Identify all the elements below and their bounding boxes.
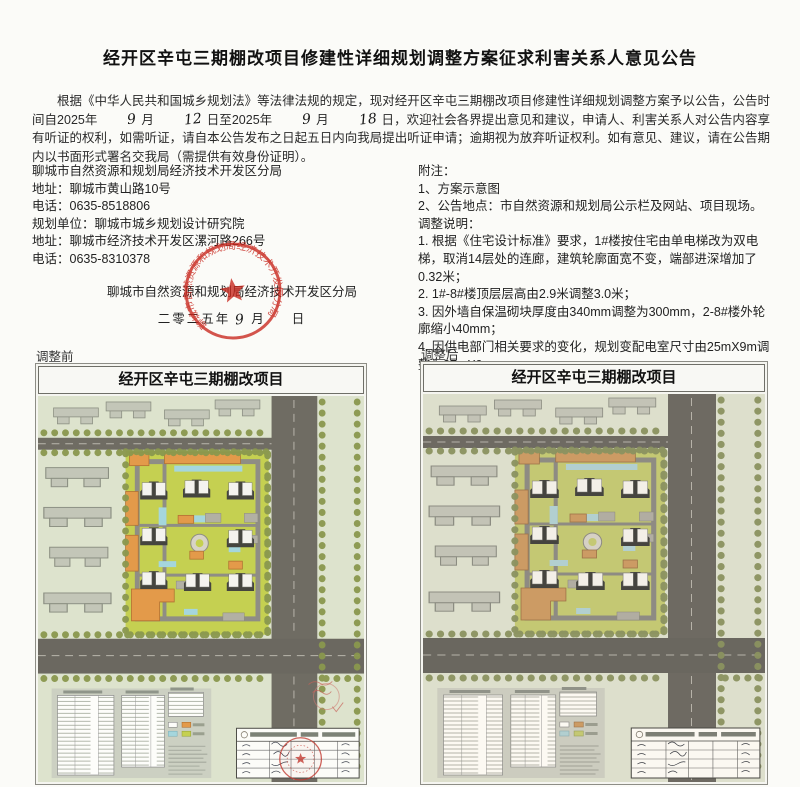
contact-block: 聊城市自然资源和规划局经济技术开发区分局 地址：聊城市黄山路10号 电话：063… [32,163,402,268]
handwritten-month: 9 [276,110,312,132]
planner-address: 地址：聊城市经济技术开发区漯河路266号 [32,233,402,251]
site-plan-map-before [38,396,364,782]
page-title: 经开区辛屯三期棚改项目修建性详细规划调整方案征求利害关系人意见公告 [40,44,760,69]
date-day-char: 日 [292,312,307,326]
notice-paragraph: 根据《中华人民共和国城乡规划法》等法律法规的规定，现对经开区辛屯三期棚改项目修建… [32,92,770,166]
handwritten-day: 18 [333,109,378,132]
bureau-name: 聊城市自然资源和规划局经济技术开发区分局 [32,163,402,181]
notes-heading: 附注： [418,163,770,181]
paragraph-text: 月 [141,113,154,127]
notes-item: 2、公告地点：市自然资源和规划局公示栏及网站、项目现场。 [418,198,770,216]
paragraph-text: 日至2025年 [207,113,272,127]
plan-title-after: 经开区辛屯三期棚改项目 [423,364,765,392]
adjust-item: 2. 1#-8#楼顶层层高由2.9米调整3.0米； [418,286,770,304]
adjust-heading: 调整说明： [418,216,770,234]
bureau-phone: 电话：0635-8518806 [32,198,402,216]
handwritten-month: 9 [235,311,248,328]
planner-name: 规划单位：聊城市城乡规划设计研究院 [32,216,402,234]
site-plan-before: 经开区辛屯三期棚改项目 [35,363,367,785]
adjust-item: 3. 因外墙自保温砌块厚度由340mm调整为300mm，2-8#楼外轮廓缩小40… [418,304,770,339]
date-year: 二零二五年 [158,312,231,326]
adjust-item: 1. 根据《住宅设计标准》要求，1#楼按住宅由单电梯改为双电梯，取消14层处的连… [418,233,770,286]
plan-title-before: 经开区辛屯三期棚改项目 [38,366,364,394]
bureau-address: 地址：聊城市黄山路10号 [32,181,402,199]
handwritten-month: 9 [102,110,138,132]
paragraph-text: 月 [316,113,329,127]
signature-date: 二零二五年9月日 [62,308,402,327]
signature-org: 聊城市自然资源和规划局经济技术开发区分局 [62,281,402,300]
signature-block: 聊城市自然资源和规划局经济技术开发区分局 二零二五年9月日 [62,281,402,327]
notes-block: 附注： 1、方案示意图 2、公告地点：市自然资源和规划局公示栏及网站、项目现场。… [418,163,770,374]
scanned-notice-document: 经开区辛屯三期棚改项目修建性详细规划调整方案征求利害关系人意见公告 根据《中华人… [0,0,800,787]
notes-item: 1、方案示意图 [418,181,770,199]
planner-phone: 电话：0635-8310378 [32,251,402,269]
handwritten-day: 12 [158,109,203,132]
date-month-char: 月 [251,312,266,326]
site-plan-after: 经开区辛屯三期棚改项目 [420,361,768,785]
site-plan-map-after [423,394,765,782]
